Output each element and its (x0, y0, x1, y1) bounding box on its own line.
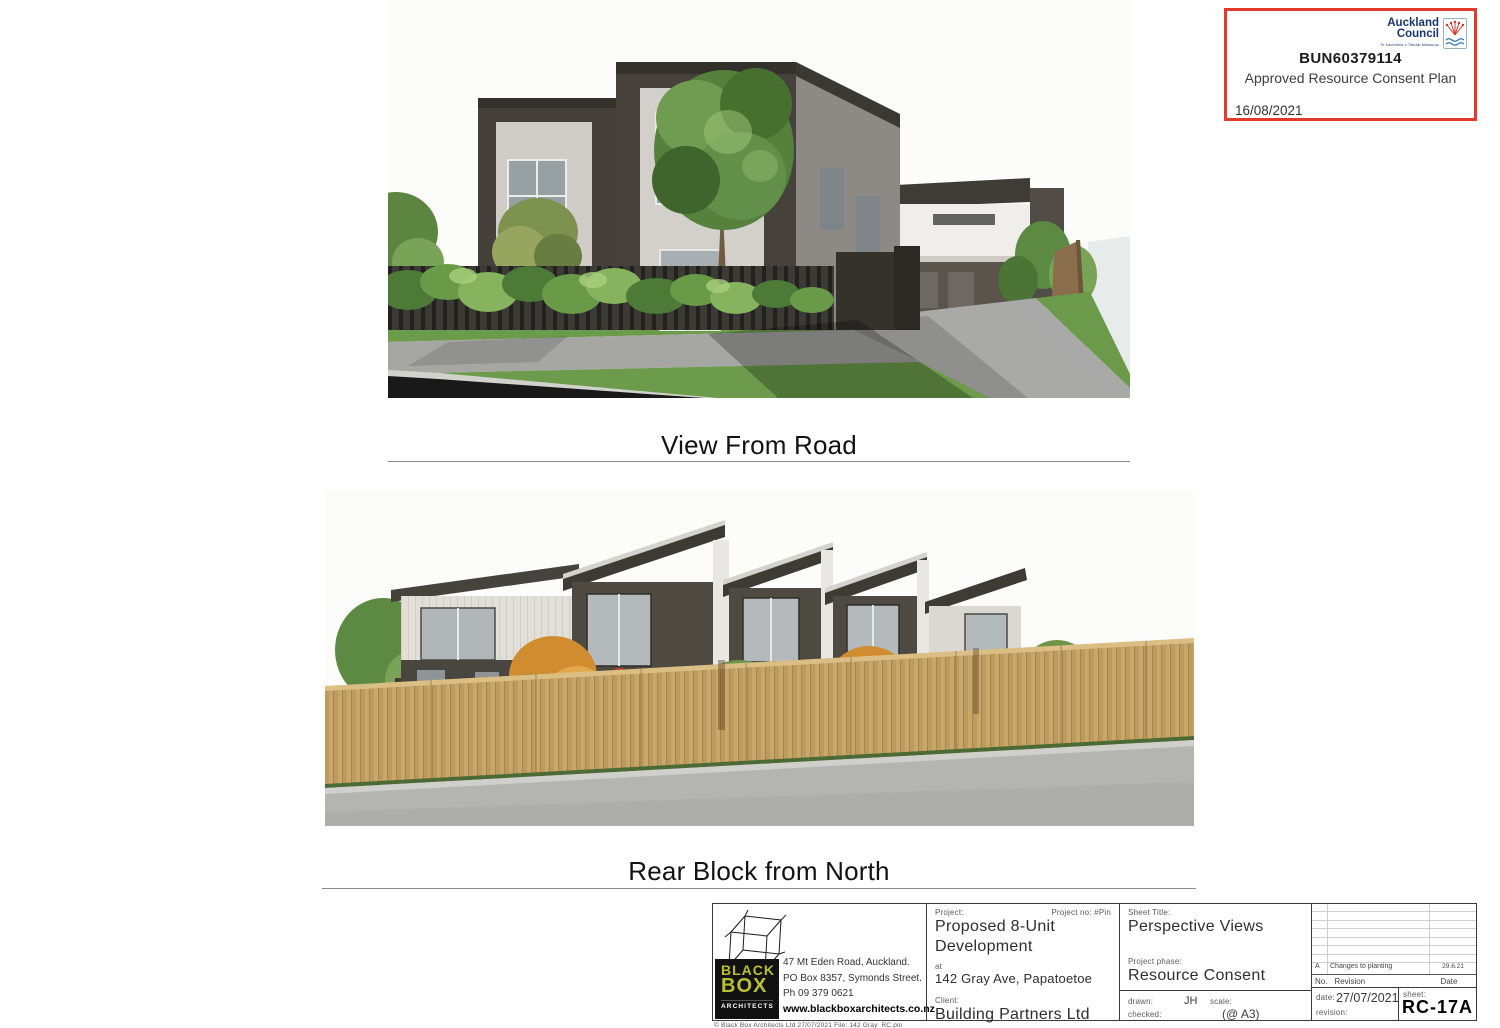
address-line1: 47 Mt Eden Road, Auckland. (783, 955, 935, 971)
view-from-road-render (388, 0, 1130, 398)
auckland-council-logo: Auckland Council Te Kaunihera o Tāmaki M… (1381, 18, 1467, 51)
project-label: Project: (935, 908, 964, 917)
revision-header-no: No. (1312, 977, 1327, 986)
architect-address: 47 Mt Eden Road, Auckland. PO Box 8357, … (783, 955, 935, 1017)
approval-date: 16/08/2021 (1235, 103, 1303, 118)
site-address: 142 Gray Ave, Papatoetoe (935, 971, 1111, 986)
approval-stamp: Auckland Council Te Kaunihera o Tāmaki M… (1224, 8, 1477, 121)
drawn-label: drawn: (1128, 997, 1153, 1006)
consent-reference-number: BUN60379114 (1227, 50, 1474, 67)
revision-no: A (1312, 963, 1328, 974)
phase-label: Project phase: (1128, 957, 1303, 966)
client-label: Client: (935, 996, 1111, 1005)
copyright-note: © Black Box Architects Ltd 27/07/2021 Fi… (714, 1022, 903, 1028)
scale-value: (@ A3) (1222, 1007, 1260, 1021)
sheet-number-cell: sheet: RC-17A (1398, 988, 1476, 1020)
logo-word-box: BOX (721, 977, 779, 996)
bottom-view-caption: Rear Block from North (322, 856, 1196, 889)
title-block: BLACK BOX ARCHITECTS 47 Mt Eden Road, Au… (712, 903, 1477, 1021)
project-name-line2: Development (935, 937, 1111, 957)
revision-empty-row (1312, 904, 1476, 912)
address-line2: PO Box 8357, Symonds Street. (783, 971, 935, 987)
project-panel: Project: Project no: #Pin Proposed 8-Uni… (926, 904, 1119, 1020)
top-view-caption: View From Road (388, 430, 1130, 462)
sheet-panel: Sheet Title: Perspective Views Project p… (1119, 904, 1311, 1020)
revision-date: 29.6.21 (1429, 963, 1476, 974)
revision-panel: A Changes to planting 29.6.21 No. Revisi… (1311, 904, 1476, 1020)
revision-header-revision: Revision (1327, 977, 1422, 986)
project-name-line1: Proposed 8-Unit (935, 917, 1111, 937)
revision-table-header: No. Revision Date (1312, 974, 1476, 987)
scale-label: scale: (1210, 997, 1232, 1006)
consent-plan-sheet: View From Road (0, 0, 1500, 1028)
auckland-council-wordmark: Auckland Council Te Kaunihera o Tāmaki M… (1381, 18, 1439, 51)
at-label: at (935, 962, 1111, 971)
blackbox-logo: BLACK BOX ARCHITECTS (715, 959, 779, 1019)
sheet-title: Perspective Views (1128, 917, 1303, 937)
revision-row-a: A Changes to planting 29.6.21 (1312, 963, 1476, 974)
project-no-label: Project no: #Pin (1051, 908, 1111, 917)
revision-empty-row (1312, 921, 1476, 929)
sheet-number: RC-17A (1399, 997, 1476, 1018)
revision-empty-row (1312, 929, 1476, 937)
project-phase: Resource Consent (1128, 966, 1303, 986)
revision-empty-row (1312, 946, 1476, 954)
architect-phone: Ph 09 379 0621 (783, 986, 935, 1002)
council-tagline: Te Kaunihera o Tāmaki Makaurau (1381, 40, 1439, 51)
sheet-title-label: Sheet Title: (1128, 908, 1303, 917)
logo-word-architects: ARCHITECTS (721, 1000, 773, 1010)
revision-label: revision: (1316, 1008, 1348, 1017)
drawn-by: JH (1184, 995, 1197, 1007)
revision-header-date: Date (1422, 977, 1476, 986)
architect-website: www.blackboxarchitects.co.nz (783, 1002, 935, 1018)
revision-empty-row (1312, 938, 1476, 946)
rear-block-render (325, 490, 1194, 826)
issue-date-cell: date: 27/07/2021 revision: (1312, 988, 1398, 1020)
checked-label: checked: (1128, 1010, 1162, 1019)
revision-empty-row (1312, 955, 1476, 963)
revision-empty-row (1312, 912, 1476, 920)
approval-text: Approved Resource Consent Plan (1227, 70, 1474, 86)
date-label: date: (1316, 993, 1335, 1002)
architect-panel: BLACK BOX ARCHITECTS 47 Mt Eden Road, Au… (713, 904, 926, 1020)
client-name: Building Partners Ltd (935, 1005, 1111, 1025)
pohutukawa-emblem-icon (1443, 18, 1467, 49)
revision-description: Changes to planting (1328, 963, 1429, 974)
council-name-line2: Council (1397, 28, 1439, 40)
issue-date: 27/07/2021 (1336, 991, 1399, 1005)
